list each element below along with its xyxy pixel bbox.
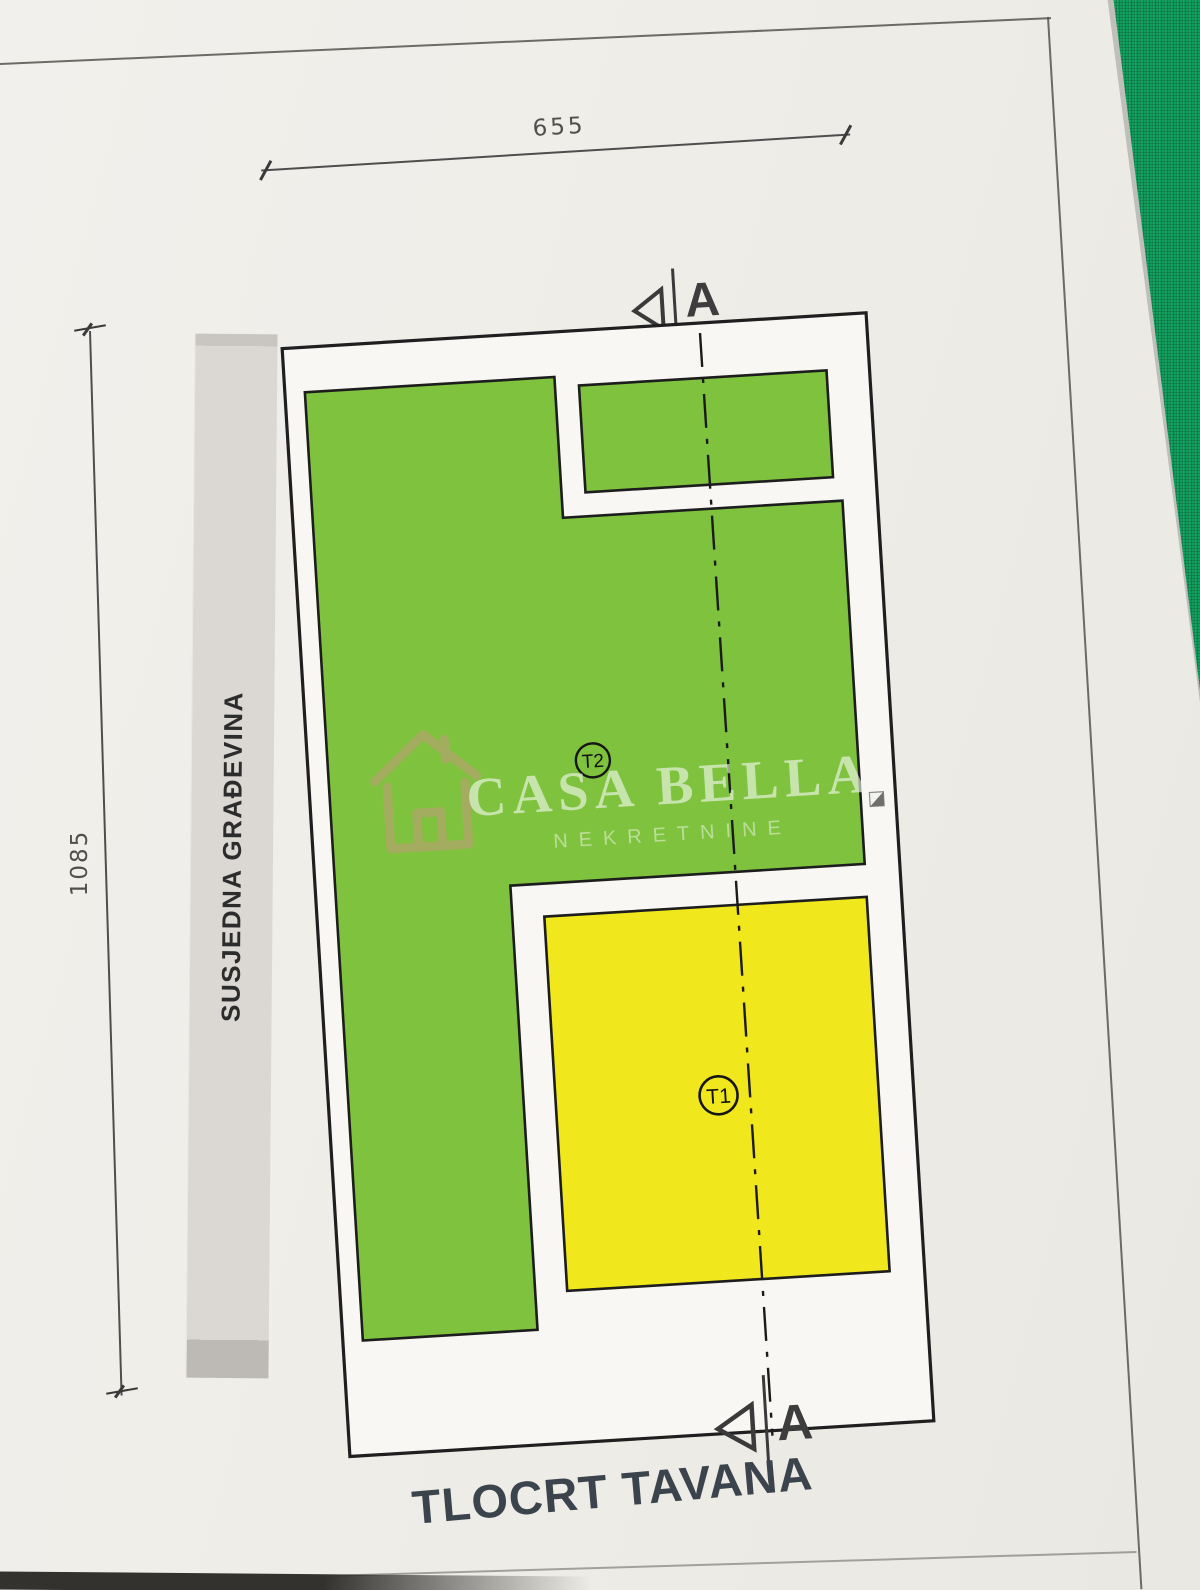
room-t2-annex: [579, 370, 833, 492]
floor-plan-drawing: T2 T1: [267, 222, 953, 1527]
room-label-t1: T1: [706, 1085, 732, 1109]
section-letter-bottom: A: [775, 1396, 814, 1448]
photographed-floor-plan: SUSJEDNA GRAĐEVINA 1085 655 A: [0, 0, 1200, 1590]
dimension-value-top: 655: [409, 105, 710, 149]
drawing-sheet: 655 A T2 T1: [0, 0, 1200, 1590]
